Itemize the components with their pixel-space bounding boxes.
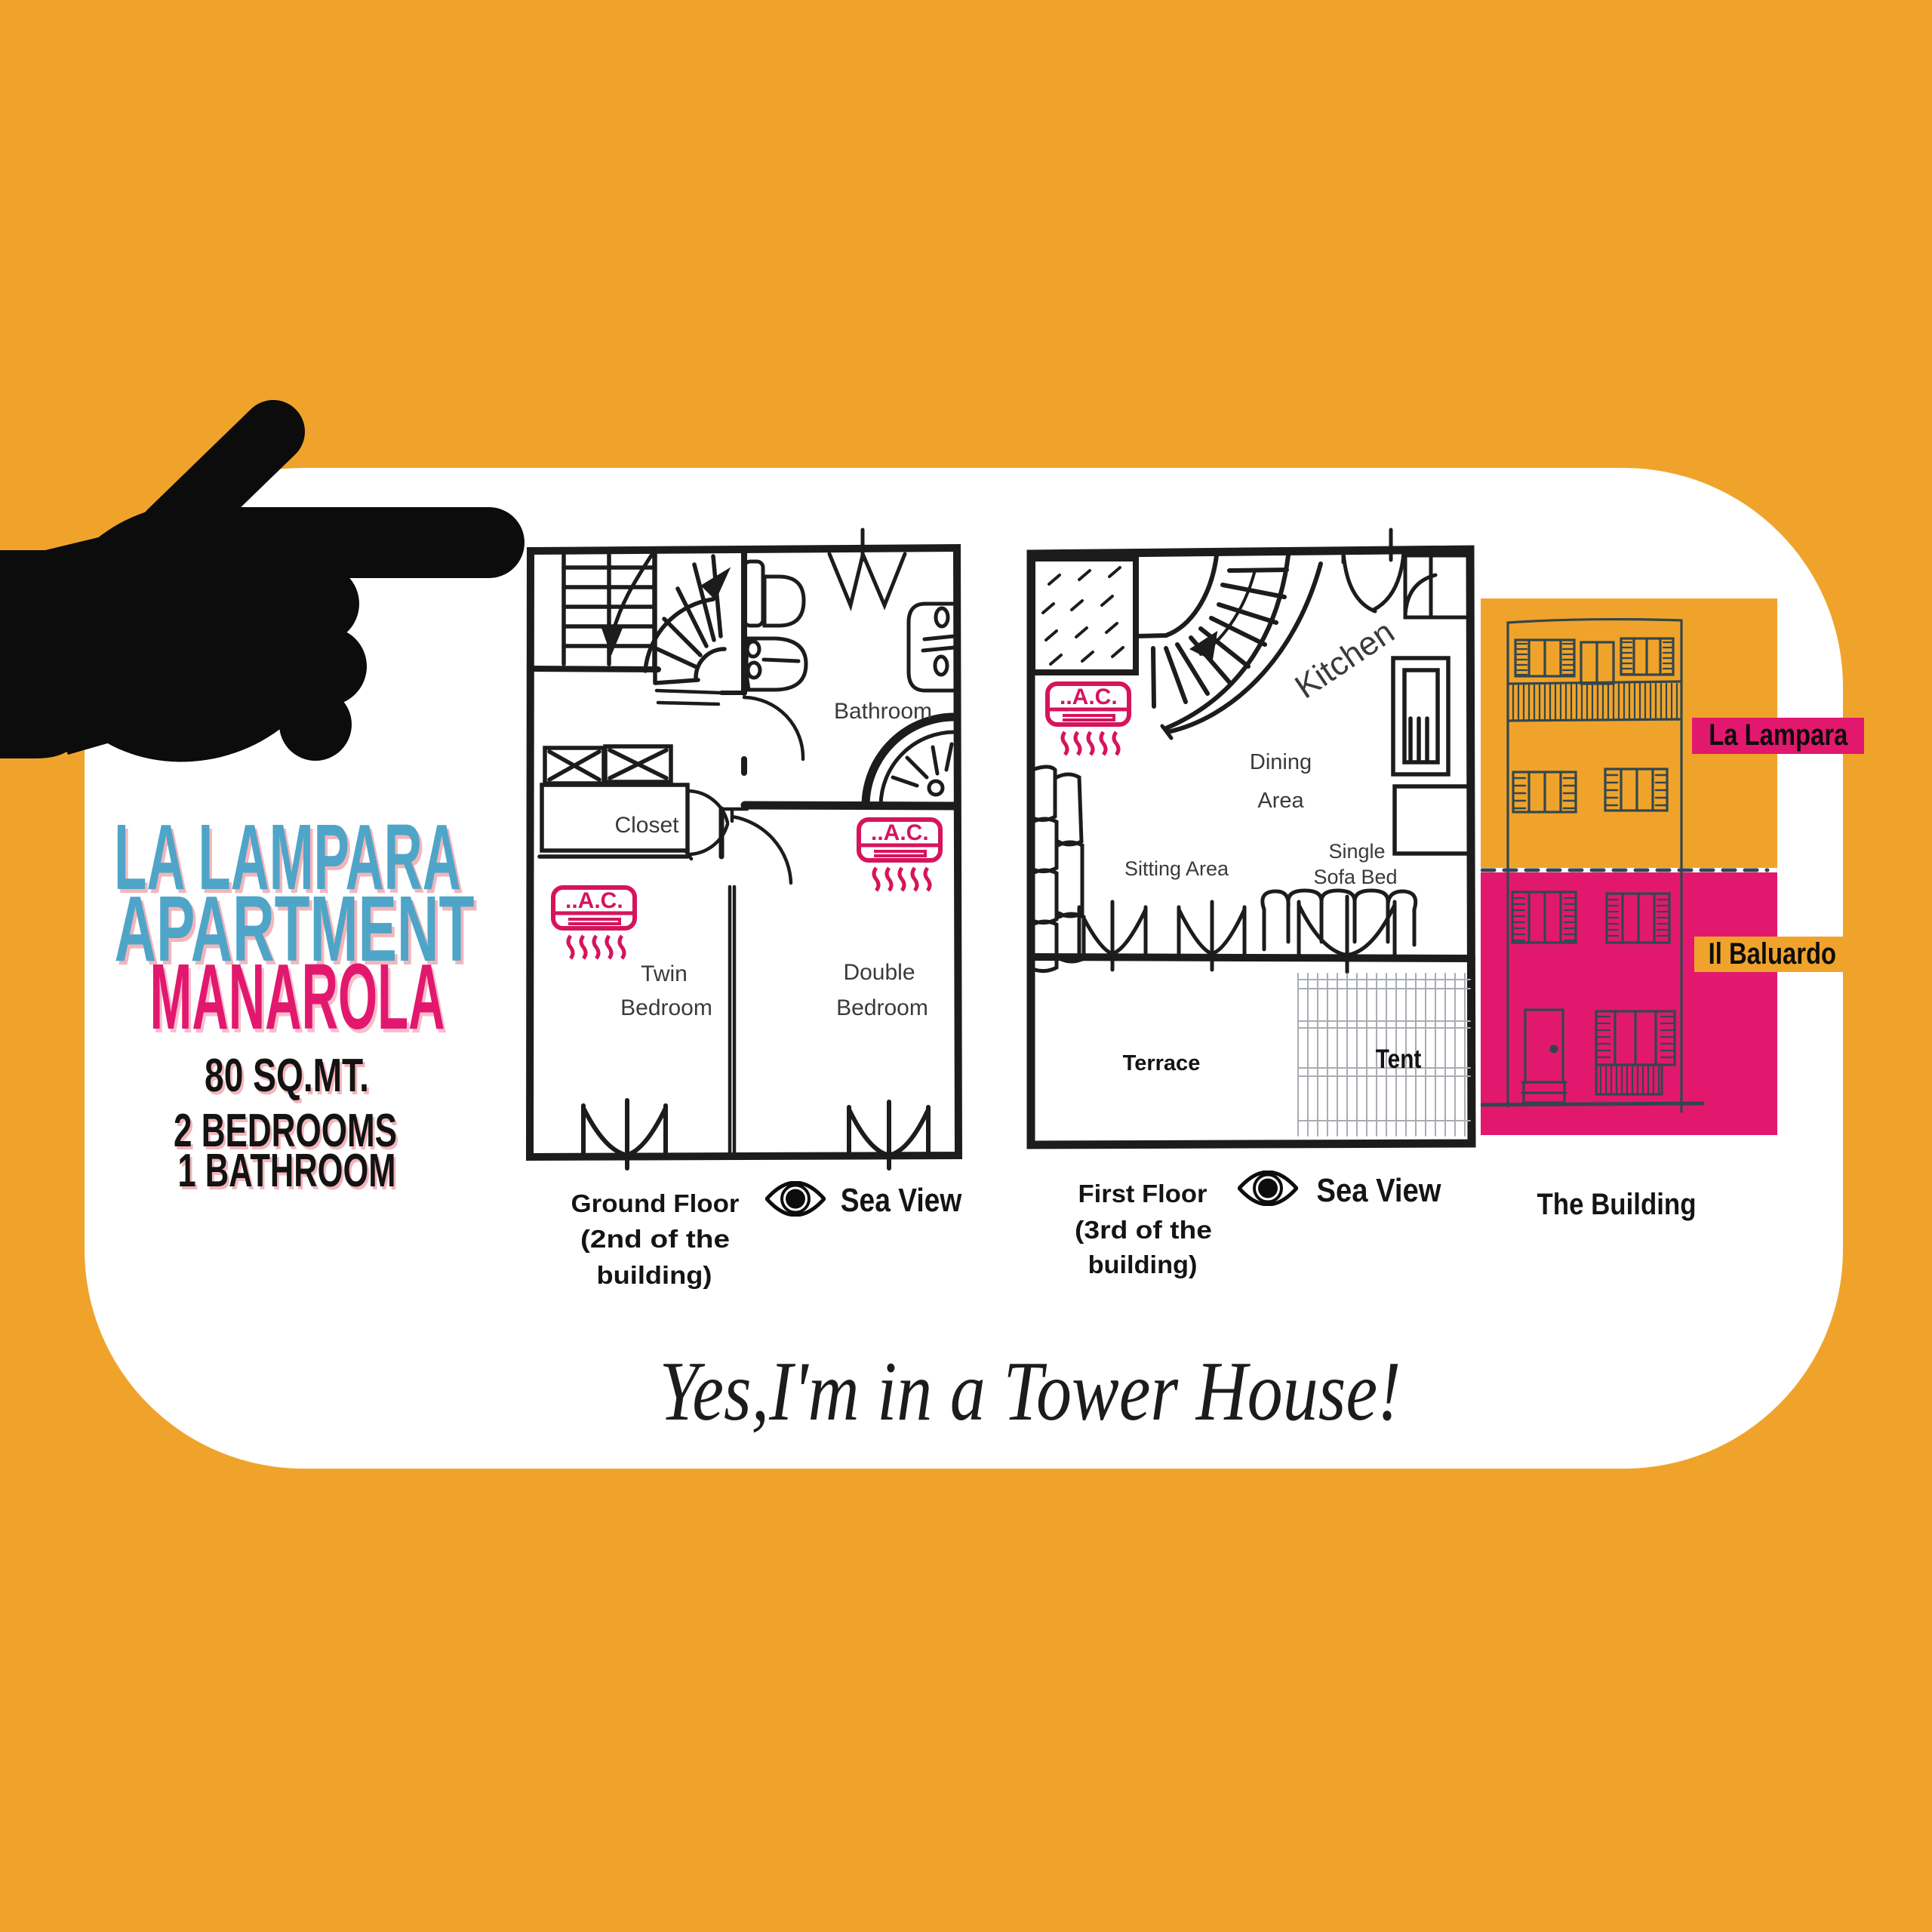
svg-text:..A.C.: ..A.C. [871,820,929,845]
svg-text:Bathroom: Bathroom [834,699,932,724]
svg-text:Area: Area [1257,789,1304,813]
svg-text:..A.C.: ..A.C. [565,888,623,913]
svg-text:Dining: Dining [1250,750,1312,774]
svg-text:Kitchen: Kitchen [1288,614,1401,706]
svg-text:Twin: Twin [641,961,688,986]
svg-text:Closet: Closet [614,813,679,838]
svg-text:Double: Double [843,960,915,985]
svg-text:Sitting Area: Sitting Area [1124,857,1229,880]
svg-text:Single: Single [1328,840,1385,863]
svg-text:Bedroom: Bedroom [836,995,928,1020]
svg-text:Sofa Bed: Sofa Bed [1313,866,1397,888]
svg-text:Bedroom: Bedroom [620,995,712,1020]
svg-text:Tent: Tent [1376,1044,1422,1074]
svg-text:Terrace: Terrace [1123,1051,1201,1075]
